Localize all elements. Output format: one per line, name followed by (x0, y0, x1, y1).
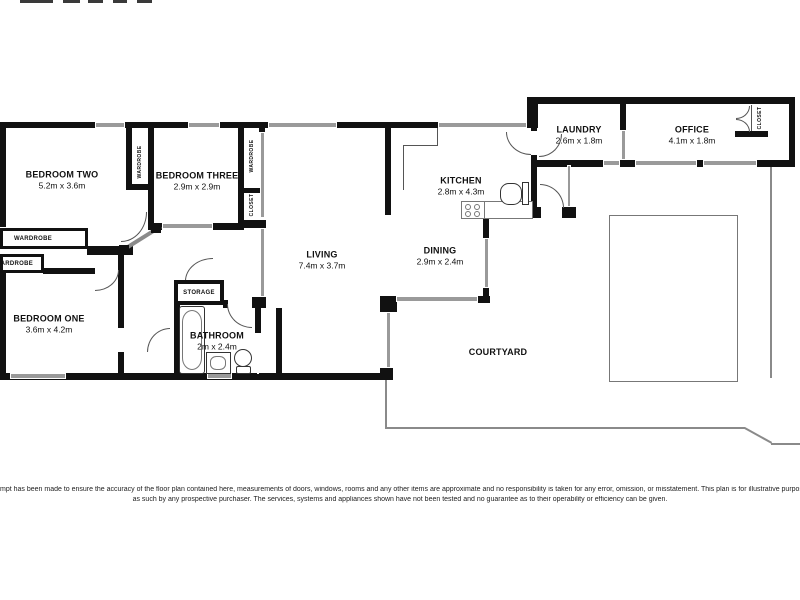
wall (380, 296, 397, 312)
stove-burner-icon (465, 211, 471, 217)
room-dims: 5.2m x 3.6m (26, 181, 99, 191)
room-label-office: OFFICE 4.1m x 1.8m (669, 125, 716, 146)
wall (0, 268, 6, 380)
room-dims: 2.8m x 4.3m (438, 187, 485, 197)
room-name: LAUNDRY (556, 125, 603, 135)
room-label-bedroom-two: BEDROOM TWO 5.2m x 3.6m (26, 170, 99, 191)
toilet-cistern-icon (522, 182, 529, 205)
storage-label: STORAGE (183, 290, 215, 296)
room-dims: 7.4m x 3.7m (299, 261, 346, 271)
wall (118, 352, 124, 380)
wall (276, 308, 282, 374)
wall (789, 97, 795, 167)
room-label-living: LIVING 7.4m x 3.7m (299, 250, 346, 271)
wall (531, 115, 537, 131)
wardrobe-label: WARDROBE (0, 261, 33, 267)
closet-label: CLOSET (249, 194, 255, 217)
window (438, 122, 527, 128)
wall (238, 122, 244, 230)
door-arc (95, 270, 119, 291)
fence (771, 443, 800, 445)
room-label-bedroom-three: BEDROOM THREE 2.9m x 2.9m (156, 171, 239, 192)
room-name: KITCHEN (438, 176, 485, 186)
closet-divider (751, 105, 752, 131)
wall (483, 288, 489, 303)
window (635, 160, 697, 166)
room-dims: 4.1m x 1.8m (669, 136, 716, 146)
disclaimer-line1: mpt has been made to ensure the accuracy… (0, 486, 800, 493)
wall (380, 368, 393, 380)
stove-icon (461, 201, 485, 219)
fence (385, 427, 745, 429)
wall (0, 122, 6, 227)
window (396, 296, 478, 302)
room-dims: 2.6m x 1.8m (556, 136, 603, 146)
floor-plan: STORAGE WARDROBE WARDROBE WARDROBE WARDR… (0, 0, 800, 600)
room-dims: 3.6m x 4.2m (13, 325, 84, 335)
room-label-kitchen: KITCHEN 2.8m x 4.3m (438, 176, 485, 197)
fence (744, 427, 772, 444)
wall (531, 97, 795, 104)
room-name: BEDROOM TWO (26, 170, 99, 180)
room-name: BEDROOM ONE (13, 314, 84, 324)
window (567, 165, 571, 207)
room-name: DINING (417, 246, 464, 256)
room-dims: 2.9m x 2.4m (417, 257, 464, 267)
wall (20, 0, 53, 3)
toilet-icon (234, 349, 252, 367)
window (10, 373, 66, 379)
sink-basin (210, 356, 226, 370)
closet-door-arc (736, 106, 750, 119)
door-arc (540, 184, 564, 208)
window (621, 130, 626, 160)
room-dims: 2.9m x 2.9m (156, 182, 239, 192)
disclaimer-line2: as such by any prospective purchaser. Th… (0, 496, 800, 503)
window (260, 132, 265, 218)
closet-door-arc (736, 119, 750, 132)
window (260, 228, 265, 297)
door-arc (227, 304, 252, 328)
wall (259, 122, 265, 132)
wall (562, 207, 576, 218)
fence (770, 167, 772, 378)
window (386, 312, 391, 368)
wall (88, 0, 103, 3)
closet-label: CLOSET (757, 107, 763, 130)
courtyard-structure (609, 215, 738, 382)
wall (0, 122, 95, 128)
room-name: BEDROOM THREE (156, 171, 239, 181)
room-label-bathroom: BATHROOM 2m x 2.4m (190, 331, 244, 352)
window (484, 238, 489, 288)
window (268, 122, 337, 128)
wall (63, 0, 80, 3)
wall (151, 223, 161, 233)
area-name: COURTYARD (469, 347, 527, 357)
stove-burner-icon (474, 211, 480, 217)
door-arc (506, 132, 531, 155)
window (7, 130, 9, 215)
wall (119, 245, 129, 255)
fence (385, 380, 387, 428)
wall (43, 268, 95, 274)
window (188, 122, 220, 128)
wall (483, 218, 489, 238)
door-arc (147, 328, 170, 352)
room-name: OFFICE (669, 125, 716, 135)
room-name: LIVING (299, 250, 346, 260)
window (257, 333, 259, 374)
wall (125, 122, 188, 128)
window (703, 160, 757, 166)
stove-burner-icon (465, 204, 471, 210)
wardrobe-label: WARDROBE (137, 146, 143, 179)
wall (620, 97, 626, 130)
wardrobe-label: WARDROBE (14, 236, 52, 242)
wardrobe-label: WARDROBE (249, 140, 255, 173)
room-label-dining: DINING 2.9m x 2.4m (417, 246, 464, 267)
room-label-bedroom-one: BEDROOM ONE 3.6m x 4.2m (13, 314, 84, 335)
toilet-base-icon (236, 366, 251, 374)
wall (244, 220, 266, 228)
room-dims: 2m x 2.4m (190, 342, 244, 352)
kitchen-counter-line (437, 128, 438, 146)
room-label-laundry: LAUNDRY 2.6m x 1.8m (556, 125, 603, 146)
wall (137, 0, 152, 3)
toilet-icon (500, 183, 522, 205)
wall (126, 122, 132, 190)
wall (620, 160, 635, 167)
window (603, 160, 620, 166)
window (162, 223, 213, 229)
stove-burner-icon (474, 204, 480, 210)
wall (255, 303, 261, 333)
wall (118, 252, 124, 328)
door-arc (185, 258, 213, 281)
window (95, 122, 125, 128)
kitchen-counter-line (403, 145, 438, 146)
wall (113, 0, 127, 3)
kitchen-counter-line (403, 145, 404, 190)
area-label-courtyard: COURTYARD (469, 347, 527, 357)
wall (385, 122, 391, 215)
wall (148, 122, 154, 230)
room-name: BATHROOM (190, 331, 244, 341)
